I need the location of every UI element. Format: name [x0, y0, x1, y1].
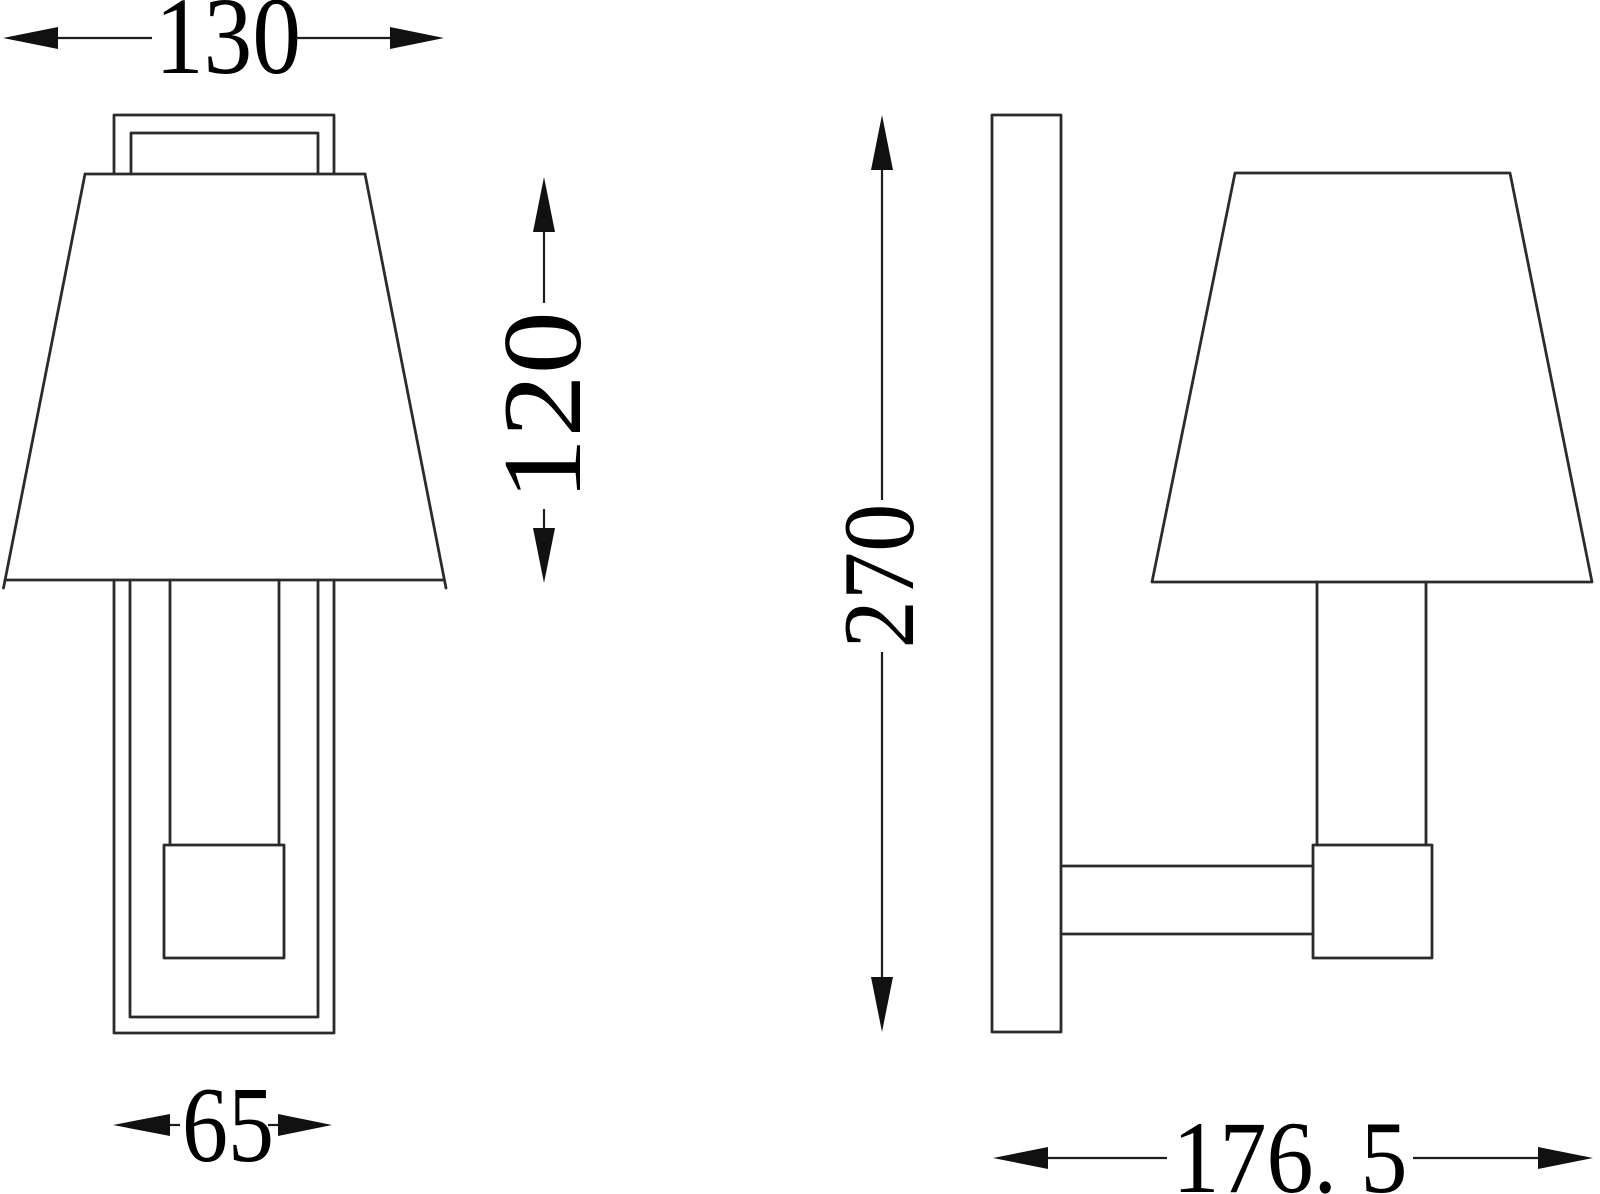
side-backplate: [992, 115, 1061, 1032]
drawing-canvas: 130 120 65 270: [0, 0, 1600, 1194]
arrowhead-left: [993, 1147, 1048, 1169]
arrowhead-down: [533, 528, 555, 583]
drawing-page: 130 120 65 270: [0, 0, 1600, 1194]
side-candle-tube: [1317, 582, 1426, 845]
arrowhead-right: [1538, 1147, 1593, 1169]
arrowhead-right: [390, 27, 444, 49]
arrowhead-left: [3, 27, 58, 49]
arrowhead-down: [871, 977, 893, 1032]
front-shade-left-edge: [4, 174, 86, 588]
side-shade-outline: [1152, 173, 1592, 582]
dim-shade-diameter: 130: [3, 0, 444, 97]
dim-label-backplate-width: 65: [182, 1066, 274, 1185]
arrowhead-up: [533, 177, 555, 232]
side-support-arm: [1061, 866, 1313, 934]
side-view: [992, 115, 1592, 1032]
dim-backplate-width: 65: [113, 1066, 332, 1185]
arrowhead-left: [113, 1114, 170, 1136]
front-mount-frame-inner-top: [131, 133, 318, 174]
front-shade-outline: [4, 174, 447, 588]
arrowhead-up: [871, 115, 893, 170]
front-candle-socket: [164, 845, 284, 958]
front-mount-frame-inner-bottom: [130, 580, 318, 1017]
dim-label-overall-height: 270: [823, 504, 936, 649]
front-mount-frame-outer-top: [114, 115, 334, 174]
front-candle-tube: [170, 580, 279, 845]
front-view: [4, 115, 447, 1033]
side-candle-socket: [1313, 845, 1432, 958]
front-shade-right-edge: [365, 174, 446, 588]
dim-overall-depth: 176. 5: [993, 1101, 1593, 1194]
dim-overall-height: 270: [823, 115, 936, 1032]
arrowhead-right: [278, 1114, 332, 1136]
front-mount-frame-outer-bottom: [114, 580, 334, 1033]
dim-label-overall-depth: 176. 5: [1173, 1101, 1408, 1194]
dim-shade-height: 120: [481, 177, 605, 583]
dim-label-shade-diameter: 130: [155, 0, 301, 97]
dim-label-shade-height: 120: [481, 311, 605, 501]
